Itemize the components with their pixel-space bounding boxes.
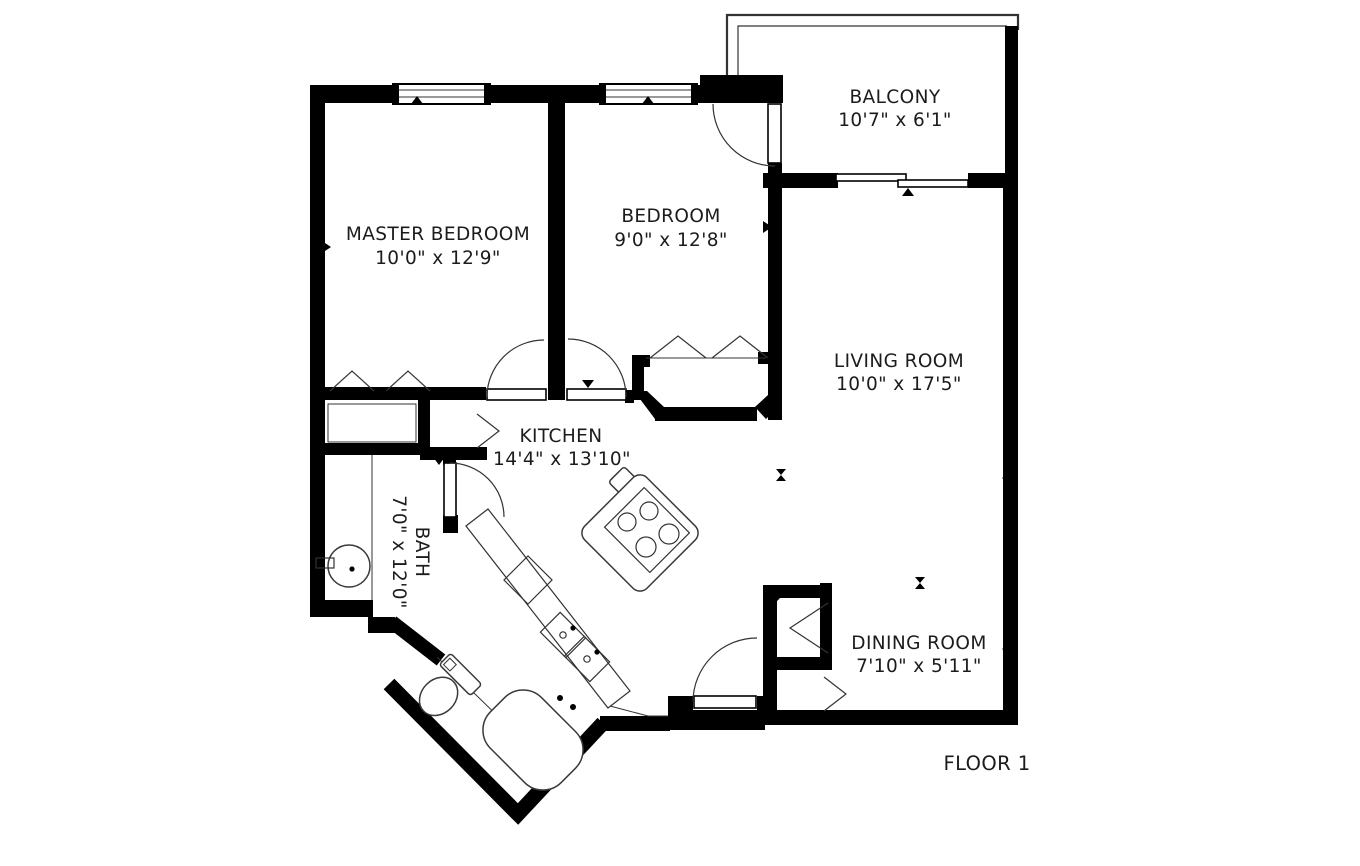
label-balcony: BALCONY xyxy=(849,87,940,108)
door-master-icon xyxy=(487,340,546,400)
floorplan-page: MASTER BEDROOM 10'0" x 12'9" BEDROOM 9'0… xyxy=(0,0,1360,866)
door-bath-icon xyxy=(444,463,504,517)
pantry-arrow-icon xyxy=(477,414,499,448)
label-dining-room: DINING ROOM xyxy=(851,633,986,654)
dims-dining-room: 7'10" x 5'11" xyxy=(856,656,982,677)
floor-label: FLOOR 1 xyxy=(943,752,1030,775)
closet-chevrons-bedroom xyxy=(646,336,768,358)
label-kitchen: KITCHEN xyxy=(520,426,603,447)
kitchen-sink-icon xyxy=(540,612,609,681)
dims-bath: 7'0" x 12'0" xyxy=(388,495,409,609)
sliding-door-icon xyxy=(836,174,968,187)
dims-master-bedroom: 10'0" x 12'9" xyxy=(375,248,501,269)
door-balcony-icon xyxy=(713,104,781,166)
label-bath: BATH xyxy=(411,527,432,578)
dims-kitchen: 14'4" x 13'10" xyxy=(493,449,631,470)
door-bedroom-icon xyxy=(567,339,626,400)
door-dining-icon xyxy=(693,638,757,708)
dims-balcony: 10'7" x 6'1" xyxy=(838,110,952,131)
label-bath-group: BATH 7'0" x 12'0" xyxy=(388,495,432,609)
window-icon xyxy=(393,84,490,104)
linen-closet xyxy=(328,404,416,442)
kitchen-island xyxy=(578,466,702,595)
dims-living-room: 10'0" x 17'5" xyxy=(836,374,962,395)
label-living-room: LIVING ROOM xyxy=(834,351,964,372)
label-bedroom: BEDROOM xyxy=(621,206,720,227)
label-master-bedroom: MASTER BEDROOM xyxy=(346,224,530,245)
dims-bedroom: 9'0" x 12'8" xyxy=(614,230,728,251)
floorplan-canvas: MASTER BEDROOM 10'0" x 12'9" BEDROOM 9'0… xyxy=(0,0,1360,866)
